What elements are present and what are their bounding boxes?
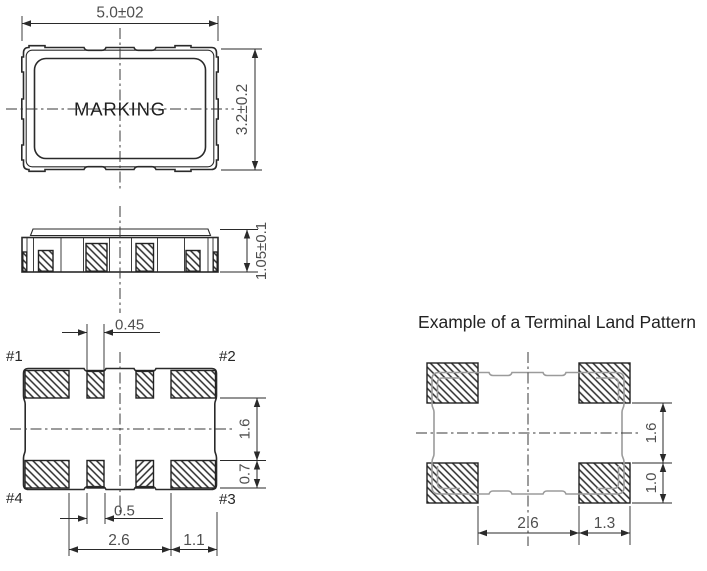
corner-pad-4 <box>25 461 69 489</box>
pin-1-label: #1 <box>6 348 23 365</box>
dim-045-extension-lines <box>87 324 104 373</box>
land-pad-top-right <box>579 363 630 403</box>
dim-inner-span-label: 2.6 <box>108 532 130 549</box>
land-pad-bottom-left <box>427 463 478 503</box>
land-dim-pad-height-label: 1.0 <box>643 473 660 494</box>
land-pattern-title: Example of a Terminal Land Pattern <box>418 312 696 332</box>
package-dimension-drawing: MARKING 5.0±02 3.2±0.2 1.05±0.1 <box>0 0 707 571</box>
dim-width-label: 5.0±02 <box>96 5 143 22</box>
dim-05-extension-lines <box>87 493 105 524</box>
side-terminal-pad <box>86 244 107 272</box>
side-terminal-pad <box>136 244 154 272</box>
corner-pad-2 <box>171 371 216 399</box>
pin-4-label: #4 <box>6 490 23 507</box>
side-view: 1.05±0.1 <box>22 206 270 313</box>
small-pad-top-left <box>87 371 104 399</box>
corner-pad-3 <box>171 461 216 489</box>
top-view: MARKING 5.0±02 3.2±0.2 <box>6 5 262 192</box>
land-dim-pad-gap-label: 1.6 <box>643 423 660 444</box>
side-terminal-pad <box>39 251 54 272</box>
land-pad-top-left <box>427 363 478 403</box>
dim-height-label: 3.2±0.2 <box>234 84 251 136</box>
dim-05-label: 0.5 <box>114 503 135 520</box>
corner-pad-1 <box>25 371 69 399</box>
dim-thickness-label: 1.05±0.1 <box>253 222 270 280</box>
land-dim-inner-span-label: 2.6 <box>517 515 539 532</box>
land-pattern: Example of a Terminal Land Pattern 1.6 1… <box>416 312 696 546</box>
side-terminal-pad <box>23 252 27 271</box>
dim-pad-height-label: 0.7 <box>237 464 254 485</box>
side-terminal-pad <box>186 251 200 272</box>
bottom-view: #1 #2 #4 #3 0.45 1.6 0.7 0.5 2.6 1.1 <box>6 317 266 557</box>
small-pad-bottom-left <box>87 461 104 489</box>
pin-3-label: #3 <box>219 491 236 508</box>
pin-2-label: #2 <box>219 348 236 365</box>
small-pad-top-right <box>136 371 154 399</box>
dim-row-gap-label: 1.6 <box>237 419 254 440</box>
drawing-svg: MARKING 5.0±02 3.2±0.2 1.05±0.1 <box>0 0 707 571</box>
land-dim-pad-width-label: 1.3 <box>594 515 616 532</box>
dim-corner-pad-width-label: 1.1 <box>183 532 205 549</box>
side-terminal-pad <box>213 252 217 271</box>
land-pad-bottom-right <box>579 463 630 503</box>
small-pad-bottom-right <box>136 461 154 489</box>
dim-045-label: 0.45 <box>115 317 144 334</box>
